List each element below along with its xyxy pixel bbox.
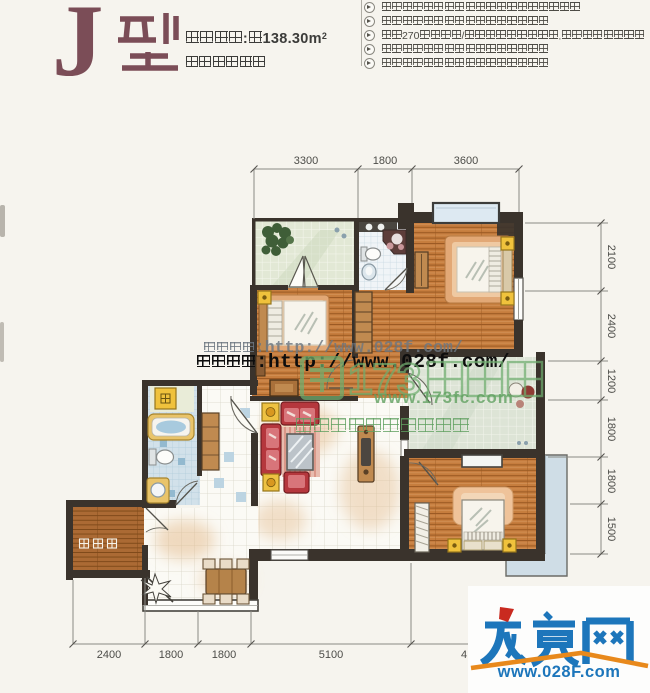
- svg-text:3600: 3600: [454, 155, 478, 167]
- svg-text:1200: 1200: [605, 369, 617, 393]
- svg-text:1800: 1800: [212, 649, 236, 661]
- svg-text:3300: 3300: [294, 155, 318, 167]
- svg-text:4: 4: [461, 649, 467, 661]
- svg-text:1800: 1800: [605, 417, 617, 441]
- svg-text:1800: 1800: [373, 155, 397, 167]
- svg-text:1800: 1800: [159, 649, 183, 661]
- svg-text:2100: 2100: [605, 245, 617, 269]
- svg-text:2400: 2400: [97, 649, 121, 661]
- svg-text:1800: 1800: [605, 469, 617, 493]
- svg-text:1500: 1500: [605, 517, 617, 541]
- svg-text:2400: 2400: [605, 314, 617, 338]
- svg-text:5100: 5100: [319, 649, 343, 661]
